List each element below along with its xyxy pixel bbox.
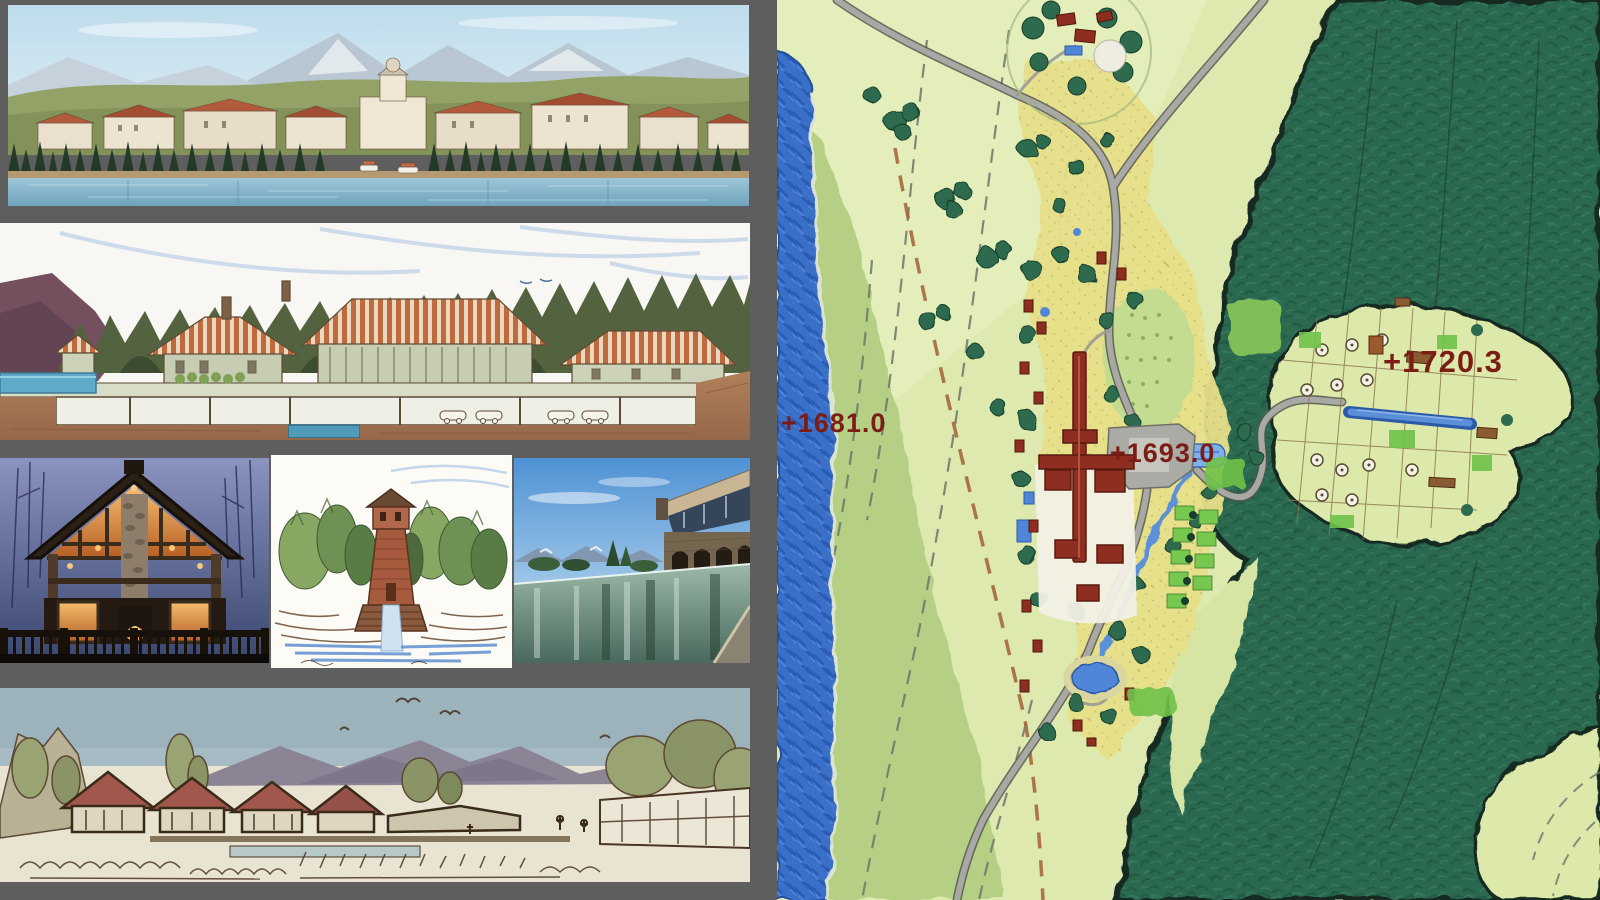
master-plan-map: +1681.0 +1693.0 +1720.3	[777, 0, 1600, 900]
presentation-board: +1681.0 +1693.0 +1720.3	[0, 0, 1600, 900]
section-elevation-image	[0, 223, 750, 440]
elevation-label-1681: +1681.0	[781, 408, 886, 438]
village-sketch-image	[0, 688, 750, 882]
elevation-label-1693: +1693.0	[1110, 438, 1215, 468]
pool-photo-image	[514, 458, 750, 663]
lodge-photo-image	[0, 458, 269, 663]
tower-sketch-image	[271, 455, 512, 668]
elevation-label-1720: +1720.3	[1383, 344, 1503, 379]
waterfront-panorama-image	[8, 5, 749, 206]
